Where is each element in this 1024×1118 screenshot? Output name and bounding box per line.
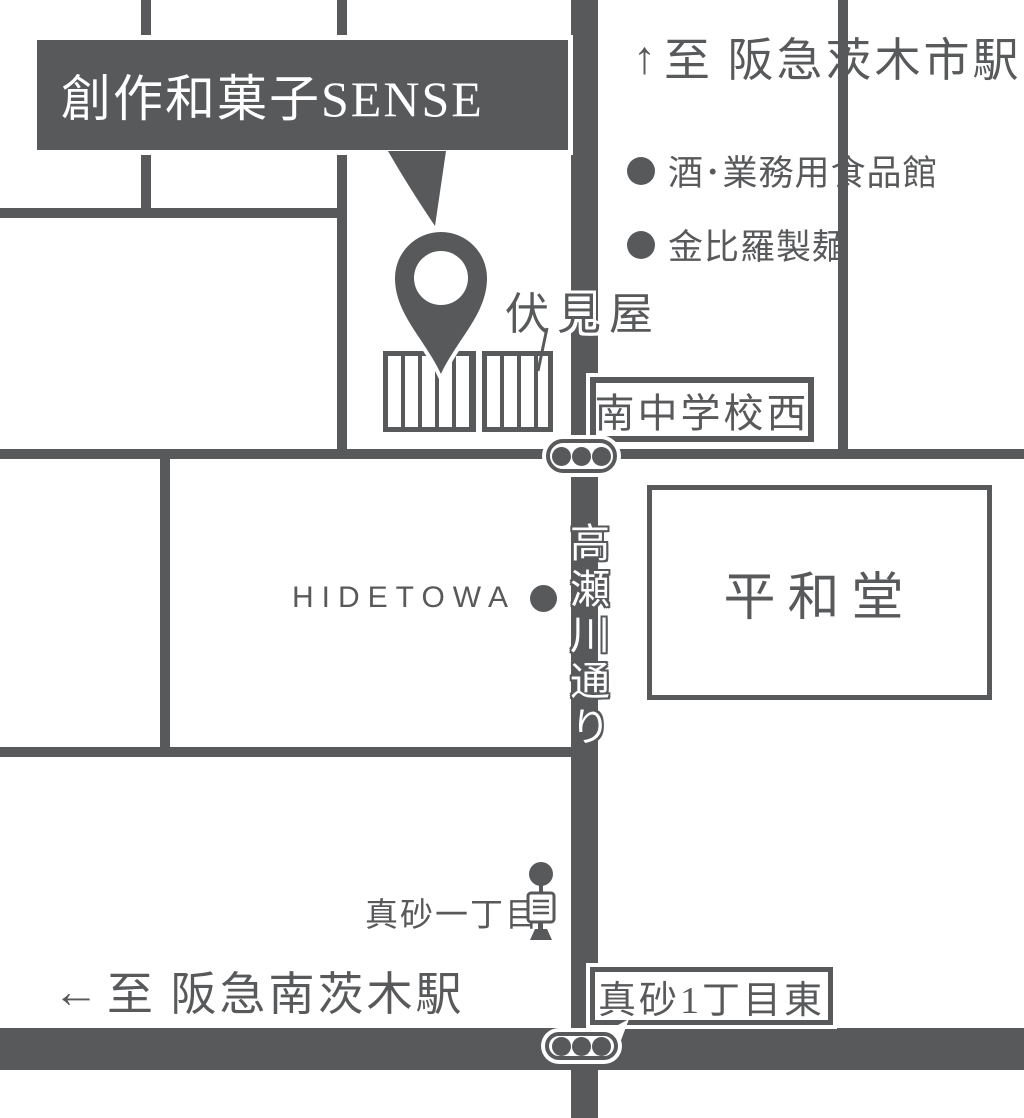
- location-pin-icon: [383, 220, 499, 382]
- fushimiya-pointer-line: [534, 326, 550, 374]
- road-bottom-main: [0, 1028, 1024, 1070]
- traffic-signal-icon: [545, 1032, 618, 1060]
- direction-north-label: 至 阪急茨木市駅: [664, 24, 1022, 90]
- signal-dot: [572, 1037, 591, 1056]
- road-block-divider: [160, 449, 170, 757]
- road-top-horizontal: [0, 208, 347, 218]
- intersection-sign-text: 南中学校西: [595, 381, 810, 439]
- intersection-sign-masago-east: 真砂1丁目東: [590, 967, 833, 1025]
- direction-west: ← 至 阪急南茨木駅: [53, 958, 465, 1024]
- bus-stop-label: 真砂一丁目: [365, 888, 540, 936]
- road-lower-horizontal: [0, 747, 598, 757]
- direction-north: ↑ 至 阪急茨木市駅: [633, 24, 1022, 90]
- fushimiya-label: 伏見屋: [505, 278, 661, 342]
- intersection-sign-south-jhs-west: 南中学校西: [590, 377, 814, 442]
- poi-label: 酒･業務用食品館: [668, 145, 939, 196]
- road-main-horizontal: [0, 449, 1024, 459]
- takasegawa-street-label: 高瀬川通り: [558, 512, 614, 762]
- signal-dot: [592, 447, 611, 466]
- poi-dot-icon: [627, 231, 655, 259]
- poi-konpira-seimen: 金比羅製麺: [627, 219, 848, 270]
- shop-title: 創作和菓子SENSE: [61, 59, 484, 131]
- direction-west-label: 至 阪急南茨木駅: [107, 958, 465, 1024]
- intersection-sign-text: 真砂1丁目東: [598, 969, 825, 1024]
- signal-dot: [572, 447, 591, 466]
- heiwado-building: 平和堂: [647, 485, 992, 700]
- shop-title-balloon: 創作和菓子SENSE: [37, 40, 568, 150]
- poi-hidetowa: HIDETOWA: [292, 581, 557, 615]
- heiwado-label: 平和堂: [723, 555, 915, 630]
- signal-dot: [592, 1037, 611, 1056]
- bus-stop-icon: [522, 861, 558, 943]
- map-canvas: 創作和菓子SENSE 伏見屋 ↑ 至 阪急茨木市駅 酒･業務用食品館 金比羅製麺…: [0, 0, 1024, 1118]
- poi-label: HIDETOWA: [292, 581, 516, 615]
- signal-dot: [552, 1037, 571, 1056]
- traffic-signal-icon: [546, 439, 617, 473]
- poi-label: 金比羅製麺: [668, 219, 848, 270]
- poi-dot-icon: [627, 157, 655, 185]
- poi-dot-icon: [530, 585, 557, 612]
- up-arrow-icon: ↑: [633, 31, 656, 84]
- left-arrow-icon: ←: [53, 965, 99, 1018]
- signal-dot: [552, 447, 571, 466]
- poi-sake-food-hall: 酒･業務用食品館: [627, 145, 939, 196]
